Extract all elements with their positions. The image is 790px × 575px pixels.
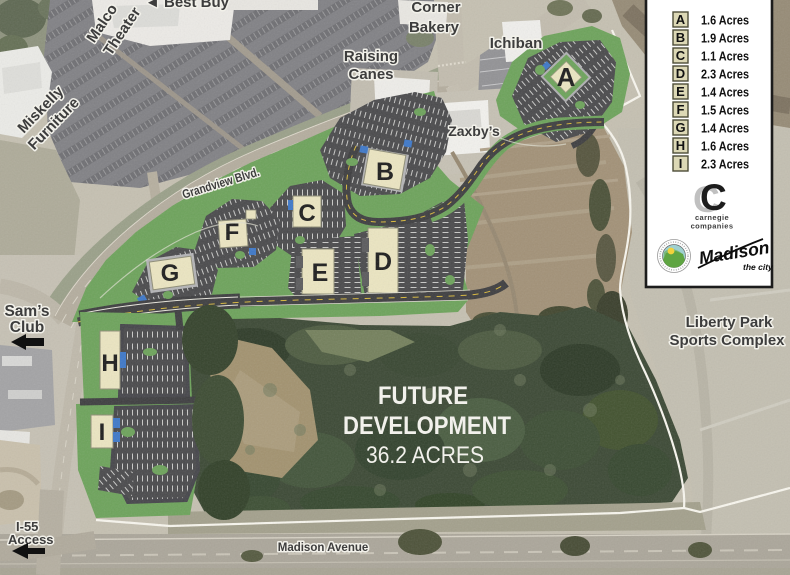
svg-text:Liberty Park: Liberty Park	[686, 314, 773, 331]
svg-text:1.6 Acres: 1.6 Acres	[701, 139, 749, 154]
svg-text:the city: the city	[743, 262, 774, 272]
svg-text:Sam’s: Sam’s	[4, 303, 49, 320]
svg-text:1.4 Acres: 1.4 Acres	[701, 121, 749, 136]
svg-text:D: D	[676, 66, 685, 81]
svg-text:H: H	[676, 138, 685, 153]
svg-text:Ichiban: Ichiban	[490, 35, 543, 52]
svg-text:FUTURE: FUTURE	[378, 382, 468, 410]
svg-text:Madison Avenue: Madison Avenue	[278, 542, 369, 554]
svg-text:Club: Club	[10, 319, 44, 336]
svg-text:C: C	[700, 177, 727, 218]
svg-text:1.6 Acres: 1.6 Acres	[701, 13, 749, 28]
svg-text:E: E	[676, 84, 685, 99]
svg-text:Zaxby’s: Zaxby’s	[448, 123, 500, 139]
svg-text:C: C	[676, 48, 686, 63]
svg-text:1.4 Acres: 1.4 Acres	[701, 85, 749, 100]
svg-text:Corner: Corner	[411, 0, 460, 16]
svg-text:36.2 ACRES: 36.2 ACRES	[366, 442, 484, 469]
svg-text:Canes: Canes	[348, 66, 393, 83]
svg-text:Raising: Raising	[344, 48, 398, 65]
svg-text:Bakery: Bakery	[409, 19, 460, 36]
svg-text:2.3 Acres: 2.3 Acres	[701, 157, 749, 172]
svg-text:1.9 Acres: 1.9 Acres	[701, 31, 749, 46]
svg-text:G: G	[675, 120, 685, 135]
svg-text:Access: Access	[8, 532, 54, 547]
svg-text:I: I	[679, 156, 683, 171]
svg-text:DEVELOPMENT: DEVELOPMENT	[343, 412, 511, 440]
svg-text:1.1 Acres: 1.1 Acres	[701, 49, 749, 64]
svg-text:B: B	[676, 30, 685, 45]
svg-text:Sports Complex: Sports Complex	[669, 332, 785, 349]
svg-text:1.5 Acres: 1.5 Acres	[701, 103, 749, 118]
svg-text:companies: companies	[691, 222, 734, 231]
svg-text:◄ Best Buy: ◄ Best Buy	[145, 0, 230, 11]
svg-text:A: A	[676, 12, 686, 27]
svg-text:F: F	[677, 102, 685, 117]
svg-text:2.3 Acres: 2.3 Acres	[701, 67, 749, 82]
